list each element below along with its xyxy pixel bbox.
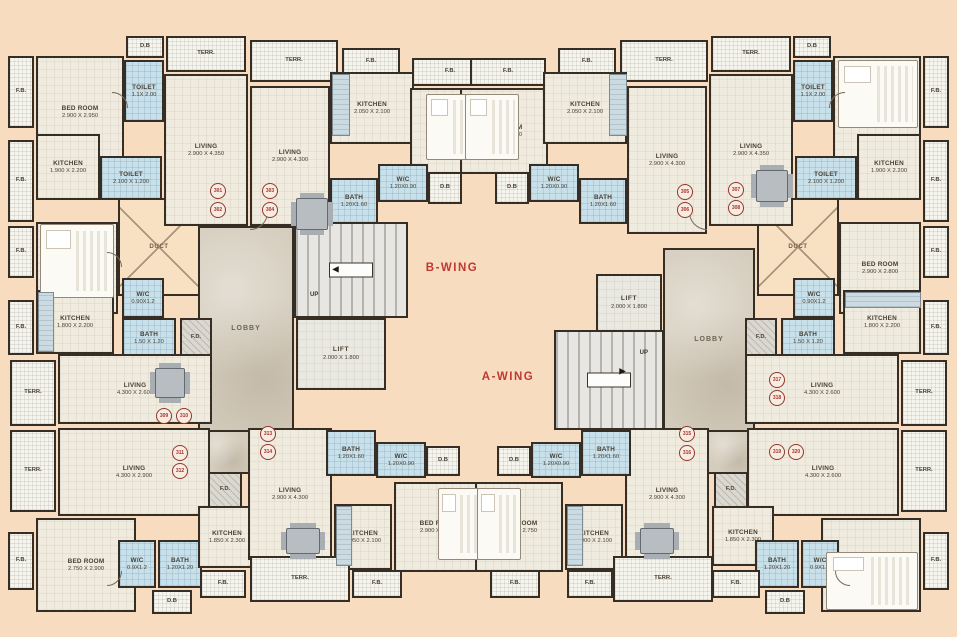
room-label: LIVING [195, 143, 218, 151]
room-label: KITCHEN [874, 160, 904, 168]
wet-room-w-c: W/C1.20X0.90 [376, 442, 426, 478]
room-label: BATH [597, 446, 615, 454]
room-label: TERR. [285, 57, 302, 64]
wet-room-bath: BATH1.20X1.60 [581, 430, 631, 476]
room-label: KITCHEN [728, 529, 758, 537]
room-label: BATH [140, 331, 158, 339]
bed-furniture [838, 60, 918, 128]
front-door-f-d: F.D. [180, 318, 212, 358]
room-dimensions: 1.20X1.60 [341, 202, 367, 209]
dining-table-furniture [756, 170, 788, 202]
dry-balcony-d-b: D.B [497, 446, 531, 476]
dining-table-furniture [296, 198, 328, 230]
dry-balcony-d-b: D.B [793, 36, 831, 58]
dry-balcony-d-b: D.B [428, 172, 462, 204]
terrace-terr: TERR. [250, 556, 350, 602]
room-dimensions: 2.900 X 4.300 [649, 161, 685, 168]
wet-room-toilet: TOILET1.1X 2.00 [793, 60, 833, 122]
room-label: D.B [507, 184, 517, 191]
room-label: D.B [167, 598, 177, 605]
room-label: KITCHEN [867, 315, 897, 323]
room-label: W/C [549, 453, 562, 461]
room-label: F.D. [191, 334, 201, 341]
room-label: F.B. [366, 58, 376, 65]
unit-number-badge: 307 [728, 182, 744, 198]
room-label: LIVING [656, 487, 679, 495]
stair-up-label: UP [310, 292, 318, 298]
wet-room-w-c: W/C1.20X0.90 [531, 442, 581, 478]
kitchen-counter [609, 74, 627, 136]
unit-number-badge: 313 [260, 426, 276, 442]
unit-number-badge: 305 [677, 184, 693, 200]
flower-bed-f-b: F.B. [923, 300, 949, 355]
room-dimensions: 2.900 X 4.300 [272, 157, 308, 164]
room-label: LIVING [656, 153, 679, 161]
room-dimensions: 2.900 X 4.300 [272, 495, 308, 502]
room-dimensions: 1.20X1.20 [764, 565, 790, 572]
terrace-terr: TERR. [901, 360, 947, 426]
room-label: TERR. [915, 389, 932, 396]
room-label: KITCHEN [212, 530, 242, 538]
room-dimensions: 1.20X1.60 [338, 454, 364, 461]
room-dimensions: 1.800 X 2.200 [57, 323, 93, 330]
wet-room-bath: BATH1.20X1.20 [755, 540, 799, 588]
front-door-f-d: F.D. [745, 318, 777, 358]
wet-room-w-c: W/C0.90X1.2 [122, 278, 164, 318]
room-dimensions: 1.1X 2.00 [801, 92, 826, 99]
wet-room-w-c: W/C1.20X0.90 [529, 164, 579, 202]
lift-lift: LIFT2.000 X 1.800 [296, 318, 386, 390]
room-label: W/C [396, 176, 409, 184]
room-label: KITCHEN [348, 530, 378, 538]
unit-number-badge: 304 [262, 202, 278, 218]
room-label: BATH [345, 194, 363, 202]
unit-number-badge: 311 [172, 445, 188, 461]
dry-balcony-d-b: D.B [495, 172, 529, 204]
terrace-terr: TERR. [613, 556, 713, 602]
room-label: DUCT [788, 243, 807, 251]
bed-furniture [438, 488, 482, 560]
room-kitchen: KITCHEN1.900 X 2.200 [857, 134, 921, 200]
room-label: W/C [813, 557, 826, 565]
room-label: F.B. [16, 88, 26, 95]
room-dimensions: 2.000 X 1.800 [611, 304, 647, 311]
wing-label-a-wing: A-WING [482, 371, 534, 383]
wet-room-toilet: TOILET1.1X 2.00 [124, 60, 164, 122]
flower-bed-f-b: F.B. [8, 532, 34, 590]
room-dimensions: 0.9X1.2 [127, 565, 147, 572]
room-dimensions: 4.300 X 2.600 [117, 390, 153, 397]
room-dimensions: 1.1X 2.00 [132, 92, 157, 99]
room-label: F.B. [16, 248, 26, 255]
unit-number-badge: 316 [679, 445, 695, 461]
dining-table-furniture [155, 368, 185, 398]
room-label: LIVING [279, 149, 302, 157]
room-label: LIVING [812, 465, 835, 473]
room-label: F.B. [445, 68, 455, 75]
room-label: LIFT [621, 295, 637, 303]
room-label: F.D. [726, 486, 736, 493]
room-dimensions: 1.20X0.90 [390, 184, 416, 191]
room-label: TERR. [915, 467, 932, 474]
unit-number-badge: 302 [210, 202, 226, 218]
kitchen-counter [38, 292, 54, 352]
room-label: KITCHEN [570, 101, 600, 109]
room-label: KITCHEN [60, 315, 90, 323]
room-label: LOBBY [231, 325, 261, 334]
room-label: KITCHEN [357, 101, 387, 109]
room-dimensions: 1.900 X 2.200 [50, 168, 86, 175]
room-label: F.B. [510, 580, 520, 587]
wet-room-bath: BATH1.20X1.60 [579, 178, 627, 224]
kitchen-counter [332, 74, 350, 136]
room-dimensions: 2.750 X 2.900 [68, 566, 104, 573]
kitchen-counter [845, 292, 921, 308]
flower-bed-f-b: F.B. [923, 532, 949, 590]
bed-furniture [465, 94, 519, 160]
room-dimensions: 1.20X0.90 [543, 461, 569, 468]
room-dimensions: 2.900 X 2.950 [62, 113, 98, 120]
unit-number-badge: 303 [262, 183, 278, 199]
stair-direction-arrow-icon: ◄ [330, 265, 341, 276]
room-dimensions: 0.90X1.2 [131, 299, 154, 306]
room-label: W/C [136, 291, 149, 299]
room-label: LOBBY [694, 336, 724, 345]
room-dimensions: 1.20X0.90 [541, 184, 567, 191]
room-dimensions: 2.050 X 2.100 [354, 109, 390, 116]
staircase-up: UP◄ [294, 222, 408, 318]
room-dimensions: 1.20X0.90 [388, 461, 414, 468]
unit-number-badge: 308 [728, 200, 744, 216]
lift-lift: LIFT2.000 X 1.800 [596, 274, 662, 332]
room-label: TOILET [801, 84, 825, 92]
stair-up-label: UP [640, 350, 648, 356]
room-label: F.B. [931, 324, 941, 331]
front-door-f-d: F.D. [714, 472, 748, 508]
room-label: W/C [130, 557, 143, 565]
room-label: BED ROOM [62, 105, 99, 113]
wet-room-toilet: TOILET2.100 X 1.200 [100, 156, 162, 200]
room-label: LIVING [740, 143, 763, 151]
front-door-f-d: F.D. [208, 472, 242, 508]
room-kitchen: KITCHEN1.900 X 2.200 [36, 134, 100, 200]
kitchen-counter [336, 506, 352, 566]
flower-bed-f-b: F.B. [8, 300, 34, 355]
flower-bed-f-b: F.B. [8, 140, 34, 222]
flower-bed-f-b: F.B. [200, 570, 246, 598]
room-label: LIVING [279, 487, 302, 495]
unit-number-badge: 301 [210, 183, 226, 199]
room-label: TERR. [655, 57, 672, 64]
room-label: F.B. [931, 88, 941, 95]
flower-bed-f-b: F.B. [470, 58, 546, 86]
room-label: F.B. [503, 68, 513, 75]
room-label: BATH [171, 557, 189, 565]
room-label: F.B. [582, 58, 592, 65]
room-living: LIVING4.300 X 2.600 [745, 354, 899, 424]
room-living: LIVING4.300 X 2.600 [747, 428, 899, 516]
room-label: D.B [780, 598, 790, 605]
room-label: BED ROOM [68, 558, 105, 566]
room-label: TERR. [24, 389, 41, 396]
room-label: D.B [438, 457, 448, 464]
room-label: F.B. [931, 557, 941, 564]
wet-room-bath: BATH1.50 X 1.20 [122, 318, 176, 358]
lobby-lobby: LOBBY [663, 248, 755, 432]
wing-label-b-wing: B-WING [426, 262, 478, 274]
flower-bed-f-b: F.B. [923, 140, 949, 222]
flower-bed-f-b: F.B. [923, 226, 949, 278]
room-label: BATH [799, 331, 817, 339]
wet-room-bath: BATH1.20X1.20 [158, 540, 202, 588]
unit-number-badge: 320 [788, 444, 804, 460]
terrace-terr: TERR. [620, 40, 708, 82]
room-living: LIVING2.900 X 4.350 [164, 74, 248, 226]
unit-number-badge: 310 [176, 408, 192, 424]
terrace-terr: TERR. [166, 36, 246, 72]
room-living: LIVING2.900 X 4.300 [627, 86, 707, 234]
bed-furniture [477, 488, 521, 560]
room-dimensions: 4.300 X 2.600 [805, 473, 841, 480]
room-dimensions: 1.50 X 1.20 [134, 339, 164, 346]
flower-bed-f-b: F.B. [8, 226, 34, 278]
unit-number-badge: 312 [172, 463, 188, 479]
room-dimensions: 1.20X1.60 [593, 454, 619, 461]
unit-number-badge: 317 [769, 372, 785, 388]
room-label: BATH [594, 194, 612, 202]
room-label: F.B. [218, 580, 228, 587]
room-dimensions: 1.800 X 2.200 [864, 323, 900, 330]
room-dimensions: 1.20X1.20 [167, 565, 193, 572]
room-dimensions: 1.50 X 1.20 [793, 339, 823, 346]
wet-room-toilet: TOILET2.100 X 1.200 [795, 156, 857, 200]
wet-room-bath: BATH1.50 X 1.20 [781, 318, 835, 358]
flower-bed-f-b: F.B. [567, 570, 613, 598]
room-dimensions: 2.900 X 4.350 [188, 151, 224, 158]
room-dimensions: 2.100 X 1.200 [113, 179, 149, 186]
room-label: F.B. [931, 177, 941, 184]
room-label: F.B. [931, 248, 941, 255]
room-label: TERR. [654, 575, 671, 582]
dry-balcony-d-b: D.B [152, 590, 192, 614]
room-dimensions: 2.050 X 2.100 [567, 109, 603, 116]
flower-bed-f-b: F.B. [8, 56, 34, 128]
terrace-terr: TERR. [250, 40, 338, 82]
room-label: W/C [807, 291, 820, 299]
wet-room-w-c: W/C0.9X1.2 [118, 540, 156, 588]
bed-furniture [40, 224, 114, 298]
kitchen-counter [567, 506, 583, 566]
room-label: KITCHEN [53, 160, 83, 168]
room-label: BATH [342, 446, 360, 454]
room-dimensions: 2.900 X 4.350 [733, 151, 769, 158]
unit-number-badge: 315 [679, 426, 695, 442]
room-label: D.B [440, 184, 450, 191]
dry-balcony-d-b: D.B [426, 446, 460, 476]
room-label: LIVING [123, 465, 146, 473]
unit-number-badge: 314 [260, 444, 276, 460]
room-label: TERR. [24, 467, 41, 474]
room-label: D.B [807, 43, 817, 50]
room-label: TERR. [291, 575, 308, 582]
room-dimensions: 0.90X1.2 [802, 299, 825, 306]
room-label: LIVING [811, 382, 834, 390]
terrace-terr: TERR. [10, 360, 56, 426]
room-label: F.B. [16, 557, 26, 564]
room-dimensions: 1.20X1.60 [590, 202, 616, 209]
room-label: F.D. [220, 486, 230, 493]
room-label: F.B. [16, 177, 26, 184]
room-dimensions: 2.900 X 2.800 [862, 269, 898, 276]
room-label: TOILET [119, 171, 143, 179]
staircase-up: UP► [554, 330, 664, 430]
flower-bed-f-b: F.B. [490, 570, 540, 598]
room-label: TOILET [814, 171, 838, 179]
room-dimensions: 4.300 X 2.600 [804, 390, 840, 397]
wet-room-bath: BATH1.20X1.60 [330, 178, 378, 224]
room-label: D.B [509, 457, 519, 464]
room-label: F.B. [16, 324, 26, 331]
floor-plan: DUCTDUCTLOBBYLOBBYLIFT2.000 X 1.800LIFT2… [0, 0, 957, 637]
room-label: LIVING [124, 382, 147, 390]
room-dimensions: 2.000 X 1.800 [323, 355, 359, 362]
room-label: F.B. [731, 580, 741, 587]
unit-number-badge: 306 [677, 202, 693, 218]
room-label: LIFT [333, 346, 349, 354]
unit-number-badge: 319 [769, 444, 785, 460]
room-label: TERR. [197, 50, 214, 57]
flower-bed-f-b: F.B. [712, 570, 760, 598]
terrace-terr: TERR. [711, 36, 791, 72]
room-label: TOILET [132, 84, 156, 92]
room-dimensions: 4.300 X 2.900 [116, 473, 152, 480]
room-label: W/C [547, 176, 560, 184]
terrace-terr: TERR. [10, 430, 56, 512]
wet-room-w-c: W/C0.90X1.2 [793, 278, 835, 318]
room-label: W/C [394, 453, 407, 461]
stair-direction-arrow-icon: ► [617, 367, 628, 378]
dry-balcony-d-b: D.B [126, 36, 164, 58]
room-dimensions: 2.100 X 1.200 [808, 179, 844, 186]
room-label: F.B. [585, 580, 595, 587]
room-label: BED ROOM [862, 261, 899, 269]
room-label: F.B. [372, 580, 382, 587]
lobby-lobby: LOBBY [198, 226, 294, 432]
room-dimensions: 2.900 X 4.300 [649, 495, 685, 502]
dining-table-furniture [286, 528, 320, 554]
room-label: TERR. [742, 50, 759, 57]
dining-table-furniture [640, 528, 674, 554]
room-dimensions: 1.850 X 2.300 [209, 538, 245, 545]
room-living: LIVING2.900 X 4.350 [709, 74, 793, 226]
dry-balcony-d-b: D.B [765, 590, 805, 614]
room-label: DUCT [149, 243, 168, 251]
terrace-terr: TERR. [901, 430, 947, 512]
flower-bed-f-b: F.B. [352, 570, 402, 598]
wet-room-w-c: W/C1.20X0.90 [378, 164, 428, 202]
wet-room-bath: BATH1.20X1.60 [326, 430, 376, 476]
unit-number-badge: 318 [769, 390, 785, 406]
room-label: F.D. [756, 334, 766, 341]
room-label: BATH [768, 557, 786, 565]
room-dimensions: 1.900 X 2.200 [871, 168, 907, 175]
flower-bed-f-b: F.B. [923, 56, 949, 128]
room-label: D.B [140, 43, 150, 50]
room-label: KITCHEN [579, 530, 609, 538]
unit-number-badge: 309 [156, 408, 172, 424]
